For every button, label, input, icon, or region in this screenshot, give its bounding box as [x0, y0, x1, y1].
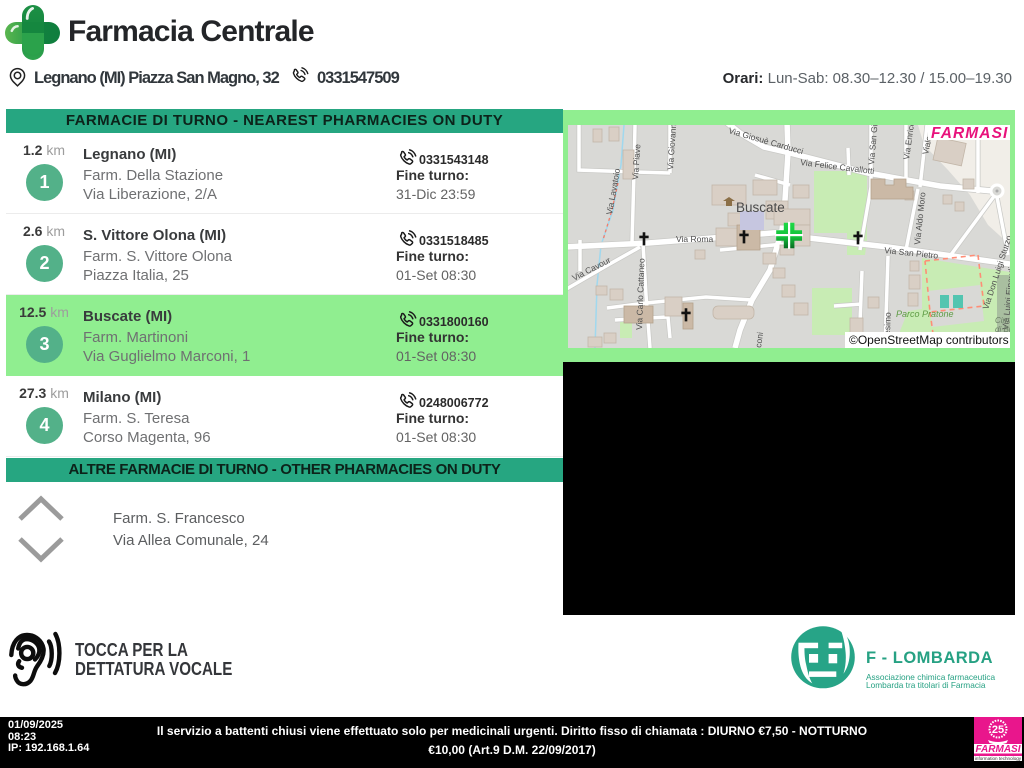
svg-text:Cimite: Cimite	[995, 316, 1010, 325]
svg-text:coni: coni	[753, 331, 765, 348]
svg-text:Buscate: Buscate	[736, 200, 785, 215]
svg-text:✝: ✝	[851, 229, 865, 248]
svg-text:©OpenStreetMap contributors: ©OpenStreetMap contributors	[849, 333, 1009, 347]
svg-text:✝: ✝	[679, 306, 693, 325]
svg-text:FARMASI: FARMASI	[976, 744, 1021, 755]
svg-text:✝: ✝	[637, 230, 651, 249]
svg-text:25: 25	[992, 724, 1004, 736]
svg-text:esimo: esimo	[882, 312, 893, 335]
svg-text:FARMASI: FARMASI	[931, 125, 1008, 142]
svg-text:✝: ✝	[737, 228, 751, 247]
svg-text:Via Roma: Via Roma	[676, 234, 713, 244]
svg-text:information technology: information technology	[975, 756, 1022, 761]
svg-text:Parco Pratone: Parco Pratone	[896, 309, 954, 319]
